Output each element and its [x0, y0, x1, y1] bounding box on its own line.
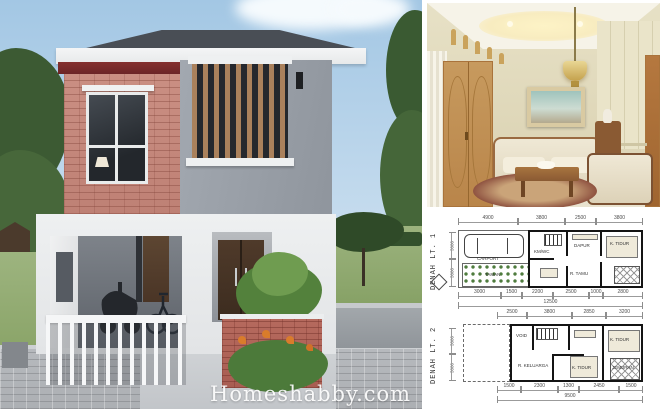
- floorplans-panel: DENAH LT. 1 4900 3800 2500 3800 3000 300…: [427, 210, 660, 409]
- orange-flower: [238, 336, 246, 344]
- orange-flower: [262, 330, 270, 338]
- painting-frame: [527, 87, 585, 127]
- bath-hatch: [614, 266, 640, 284]
- plan1-left-dimension: 3000: [449, 259, 456, 287]
- plan1-top-dimensions: 4900 3800 2500 3800: [458, 218, 643, 225]
- dim-label: 3800: [519, 215, 564, 221]
- plan2-label: DENAH LT. 2: [430, 322, 438, 384]
- utility-box: [2, 342, 28, 368]
- boundary-wall: [336, 306, 422, 348]
- room-label: DAPUR: [574, 244, 590, 249]
- plan1-carport-zone: CARPORT TAMAN: [458, 230, 530, 288]
- dim-label: 2500: [498, 309, 526, 315]
- car-outline: [464, 234, 524, 258]
- room-label: K. TIDUR: [572, 366, 591, 371]
- room-label: K. TIDUR: [610, 242, 629, 247]
- bench-ottoman: [587, 153, 653, 205]
- plan1-main-block: R. TAMU DAPUR K. TIDUR KM/WC: [528, 230, 643, 288]
- plan2-top-dimensions: 2500 3800 2850 3200: [497, 312, 643, 319]
- exterior-render-panel: Homeshabby.com: [0, 0, 422, 409]
- door-knob: [465, 132, 468, 140]
- transom-slit: [475, 41, 480, 54]
- dim-label: 2450: [580, 383, 618, 389]
- lawn-tree-trunk: [362, 248, 365, 286]
- plan2-roof-terrace: [463, 324, 510, 382]
- transom-slit: [463, 35, 468, 49]
- planter-cap: [220, 314, 324, 319]
- window-canopy: [82, 85, 154, 91]
- plan2-bottom-dimensions: 1500 2300 1300 2450 1500: [497, 386, 643, 393]
- dim-label: 2850: [573, 309, 605, 315]
- slat-window-header: [188, 56, 292, 64]
- house-design-collage: Homeshabby.com: [0, 0, 660, 409]
- dim-label: 1000: [590, 289, 602, 295]
- dim-label: 3800: [528, 309, 571, 315]
- interior-photo-panel: [427, 3, 660, 207]
- door-carving: [472, 76, 491, 188]
- plan1-left-dimension: 3000: [449, 232, 456, 259]
- dim-label: 1500: [620, 383, 642, 389]
- red-accent-band: [58, 62, 180, 74]
- wood-slat-screen-window: [192, 64, 288, 158]
- stairs-hatch: [544, 234, 562, 246]
- room-label: K. TIDUR: [610, 338, 629, 343]
- dim-label: 2200: [523, 289, 552, 295]
- dim-label: 2800: [604, 289, 642, 295]
- dim-label: 2500: [554, 289, 588, 295]
- transom-slit: [487, 47, 492, 59]
- coffee-table: [515, 167, 579, 181]
- kitchen-counter: [572, 234, 598, 240]
- room-label: R. TAMU: [570, 272, 588, 277]
- plan1-bottom-dimensions: 3000 1500 2200 2500 1000 2800: [458, 292, 643, 299]
- cove-light-glow: [479, 11, 609, 41]
- vase: [603, 109, 612, 123]
- dim-label: 3000: [459, 289, 500, 295]
- room-label: KM/WC: [534, 250, 550, 255]
- orange-flower: [286, 336, 294, 344]
- wall-lamp: [296, 72, 303, 89]
- room-label: R. KELUARGA: [518, 364, 548, 369]
- plan1-total-dimension: 12500: [458, 302, 643, 309]
- boundary-wall-cap: [336, 303, 422, 308]
- lamp-inside-window: [95, 157, 109, 167]
- transom-slit: [451, 29, 456, 45]
- dim-label: 1300: [559, 383, 578, 389]
- dim-label: 2300: [522, 383, 557, 389]
- plan2-total-dimension: 9500: [497, 396, 643, 403]
- tea-set: [537, 161, 555, 169]
- room-label: TAMAN: [485, 273, 500, 278]
- cabinet: [574, 330, 596, 338]
- plan2-left-dimension: 3000: [449, 354, 456, 381]
- dim-label: 3800: [597, 215, 642, 221]
- window-mullion: [89, 145, 145, 148]
- table-leg: [521, 181, 525, 197]
- room-label: JEMURAN: [612, 366, 634, 371]
- transom-slit: [499, 53, 504, 64]
- gate-bars: [46, 323, 186, 385]
- gate-top-rail: [46, 315, 186, 323]
- plan2-main-block: VOID R. KELUARGA K. TIDUR K. TIDUR JEMUR…: [510, 324, 643, 382]
- sofa-symbol: [540, 268, 558, 278]
- watermark: Homeshabby.com: [210, 382, 411, 406]
- dim-label: 3200: [607, 309, 642, 315]
- dim-label: 1500: [502, 289, 521, 295]
- plan2-left-dimension: 3000: [449, 328, 456, 354]
- dim-label: 4900: [459, 215, 517, 221]
- painting-canvas: [531, 91, 581, 123]
- slat-window-sill: [186, 158, 294, 166]
- dim-label: 12500: [459, 299, 642, 305]
- downlight: [577, 21, 583, 27]
- table-leg: [569, 181, 573, 197]
- dim-label: 2500: [566, 215, 595, 221]
- dim-label: 1500: [498, 383, 520, 389]
- orange-flower: [306, 344, 313, 351]
- downlight: [507, 21, 513, 27]
- carport-side-window: [56, 252, 73, 302]
- dim-label: 9500: [498, 393, 642, 399]
- window-mullion: [115, 95, 118, 181]
- pendant-lamp-rod: [574, 7, 576, 63]
- room-label: CARPORT: [477, 257, 499, 262]
- stairs-hatch: [536, 328, 558, 340]
- bed: [606, 236, 638, 258]
- upper-window: [86, 92, 148, 184]
- pendant-lamp-shade: [563, 61, 587, 81]
- door-split: [468, 62, 469, 207]
- room-label: VOID: [516, 334, 527, 339]
